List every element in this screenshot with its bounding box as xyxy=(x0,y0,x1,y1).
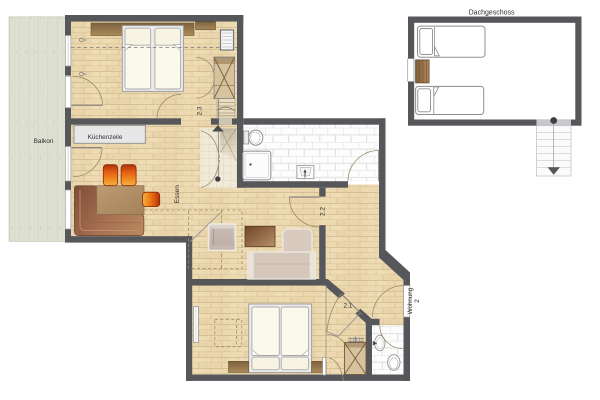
svg-text:2.1: 2.1 xyxy=(344,302,353,309)
svg-text:Essen: Essen xyxy=(174,185,181,203)
svg-text:Küchenzeile: Küchenzeile xyxy=(88,134,123,141)
svg-text:2: 2 xyxy=(414,299,421,303)
svg-text:2.2: 2.2 xyxy=(320,207,327,216)
svg-text:Wohnung: Wohnung xyxy=(407,287,414,314)
svg-text:Dachgeschoss: Dachgeschoss xyxy=(469,9,515,16)
svg-text:Balkon: Balkon xyxy=(34,138,54,145)
svg-text:2.3: 2.3 xyxy=(196,106,203,115)
